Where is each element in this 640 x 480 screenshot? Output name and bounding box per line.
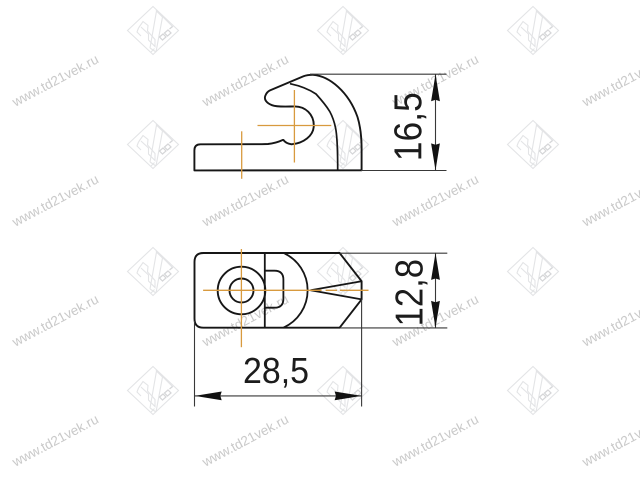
svg-text:www.td21vek.ru: www.td21vek.ru <box>389 412 481 470</box>
svg-text:www.td21vek.ru: www.td21vek.ru <box>579 292 640 350</box>
svg-text:www.td21vek.ru: www.td21vek.ru <box>9 172 101 230</box>
svg-text:www.td21vek.ru: www.td21vek.ru <box>9 412 101 470</box>
svg-text:www.td21vek.ru: www.td21vek.ru <box>9 292 101 350</box>
svg-text:www.td21vek.ru: www.td21vek.ru <box>579 412 640 470</box>
svg-text:www.td21vek.ru: www.td21vek.ru <box>199 172 291 230</box>
svg-text:www.td21vek.ru: www.td21vek.ru <box>389 172 481 230</box>
svg-text:www.td21vek.ru: www.td21vek.ru <box>199 412 291 470</box>
svg-text:www.td21vek.ru: www.td21vek.ru <box>9 52 101 110</box>
svg-text:www.td21vek.ru: www.td21vek.ru <box>199 52 291 110</box>
svg-text:www.td21vek.ru: www.td21vek.ru <box>579 52 640 110</box>
svg-text:www.td21vek.ru: www.td21vek.ru <box>199 292 291 350</box>
svg-text:www.td21vek.ru: www.td21vek.ru <box>579 172 640 230</box>
